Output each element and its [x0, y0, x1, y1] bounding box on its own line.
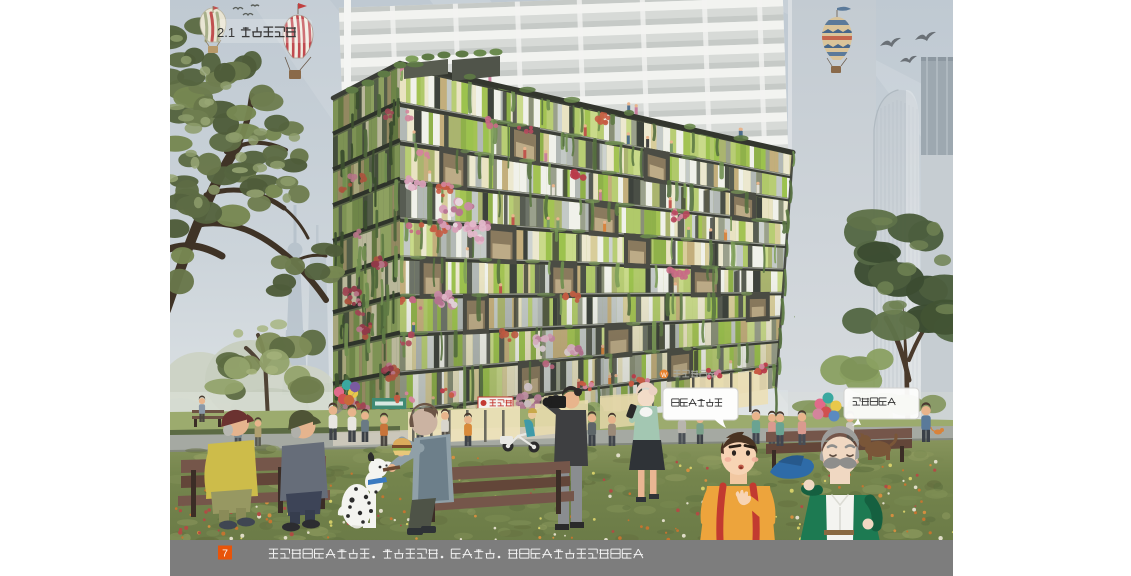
- svg-text:W: W: [661, 373, 667, 379]
- svg-text:2.1: 2.1: [217, 25, 235, 40]
- svg-text:7: 7: [222, 548, 228, 560]
